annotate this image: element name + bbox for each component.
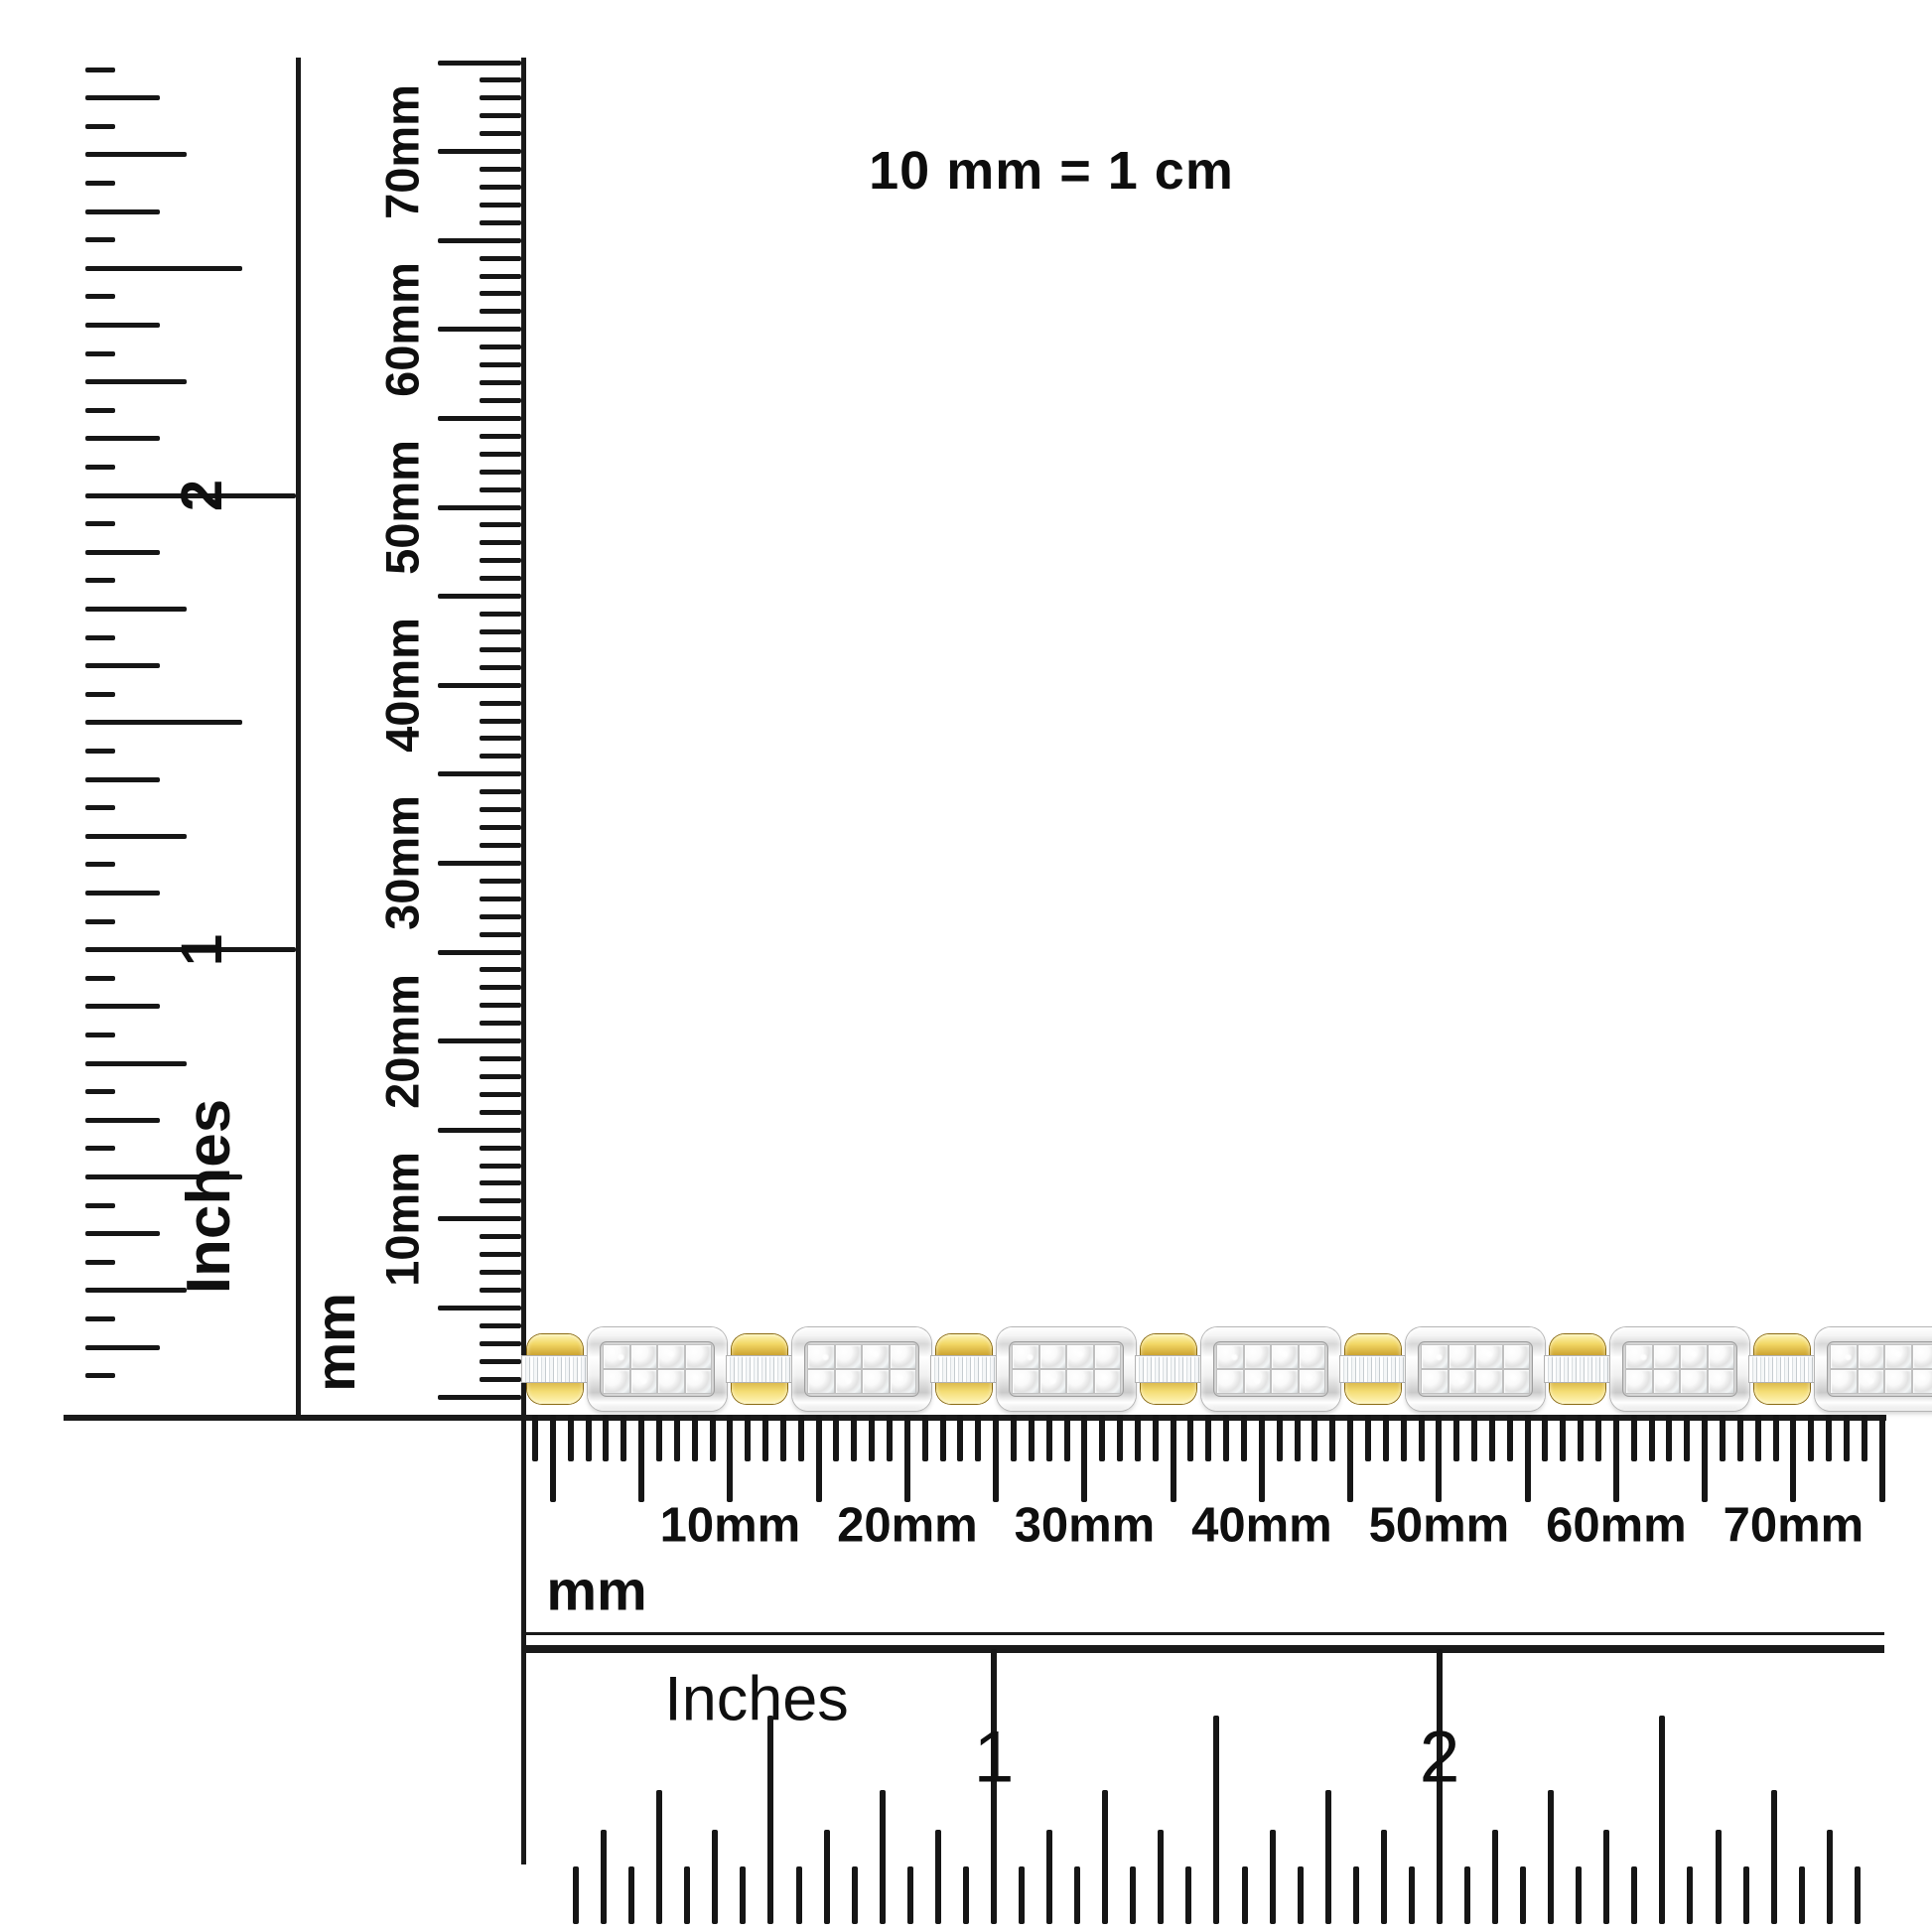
mm-minor-tick (480, 558, 521, 563)
mm-major-tick (1613, 1415, 1619, 1502)
mm-minor-tick (480, 985, 521, 990)
princess-diamond (1449, 1345, 1475, 1368)
mm-minor-tick (480, 612, 521, 617)
mm-minor-tick (674, 1415, 680, 1461)
mm-minor-tick (710, 1415, 716, 1461)
mm-minor-tick (480, 1180, 521, 1185)
sixteenth-inch-tick (1074, 1866, 1080, 1924)
half-inch-tick (1213, 1716, 1219, 1924)
scale-reference-image: 10 mm = 1 cm 21 Inches 70mm60mm50mm40mm3… (0, 0, 1932, 1932)
bracelet-link (1406, 1327, 1545, 1411)
eighth-inch-tick (824, 1830, 830, 1924)
mm-minor-tick (1117, 1415, 1123, 1461)
mm-minor-tick (480, 309, 521, 314)
sixteenth-inch-tick (85, 351, 115, 356)
princess-diamond (863, 1370, 889, 1393)
princess-diamond (1831, 1370, 1857, 1393)
mm-minor-tick (480, 576, 521, 581)
mm-minor-tick (1578, 1415, 1584, 1461)
mm-major-tick (550, 1415, 556, 1502)
princess-diamond (1476, 1345, 1502, 1368)
mm-minor-tick (480, 274, 521, 279)
quarter-inch-tick (1325, 1790, 1331, 1924)
quarter-inch-tick (85, 607, 187, 612)
baguette-diamond-channel (522, 1356, 588, 1382)
mm-minor-tick (692, 1415, 698, 1461)
mm-major-tick (438, 861, 521, 866)
sixteenth-inch-tick (85, 1146, 115, 1151)
princess-diamond (1504, 1345, 1530, 1368)
mm-minor-tick (480, 345, 521, 349)
sixteenth-inch-tick (85, 181, 115, 186)
sixteenth-inch-tick (85, 1260, 115, 1265)
mm-minor-tick (1241, 1415, 1247, 1461)
sixteenth-inch-tick (963, 1866, 969, 1924)
princess-diamond (1272, 1345, 1298, 1368)
horizontal-mm-tick-label: 60mm (1546, 1502, 1687, 1551)
sixteenth-inch-tick (1855, 1866, 1861, 1924)
eighth-inch-tick (712, 1830, 718, 1924)
princess-diamond (686, 1370, 712, 1393)
mm-minor-tick (1720, 1415, 1725, 1461)
mm-minor-tick (480, 434, 521, 439)
mm-major-tick (438, 950, 521, 955)
mm-minor-tick (480, 1092, 521, 1097)
baguette-diamond-channel (1749, 1356, 1815, 1382)
mm-major-tick (438, 505, 521, 510)
eighth-inch-tick (85, 209, 160, 214)
princess-diamond (604, 1345, 629, 1368)
bottom-inches-ruler-topline-thin (524, 1632, 1884, 1635)
sixteenth-inch-tick (85, 919, 115, 924)
mm-minor-tick (480, 522, 521, 527)
bracelet-gold-connector (1545, 1327, 1610, 1411)
princess-diamond (1095, 1345, 1121, 1368)
mm-minor-tick (1862, 1415, 1867, 1461)
sixteenth-inch-tick (85, 294, 115, 299)
princess-diamond (1040, 1345, 1066, 1368)
eighth-inch-tick (85, 1231, 160, 1236)
bracelet-photo (522, 1327, 1932, 1411)
sixteenth-inch-tick (85, 68, 115, 72)
mm-minor-tick (480, 291, 521, 296)
mm-major-tick (1525, 1415, 1531, 1502)
princess-diamond (1422, 1370, 1448, 1393)
sixteenth-inch-tick (85, 692, 115, 697)
princess-diamond (1913, 1345, 1932, 1368)
princess-diamond (1300, 1345, 1325, 1368)
bottom-inches-ruler-topline (524, 1645, 1884, 1653)
mm-major-tick (1347, 1415, 1353, 1502)
princess-diamond (1245, 1345, 1271, 1368)
princess-diamond (1626, 1370, 1652, 1393)
princess-diamond (836, 1370, 862, 1393)
mm-minor-tick (480, 487, 521, 492)
mm-minor-tick (480, 914, 521, 919)
mm-minor-tick (1542, 1415, 1548, 1461)
mm-minor-tick (480, 256, 521, 261)
vertical-mm-tick-label: 40mm (379, 618, 426, 753)
diamond-cluster-panel (1828, 1342, 1932, 1396)
sixteenth-inch-tick (85, 578, 115, 583)
sixteenth-inch-tick (85, 976, 115, 981)
quarter-inch-tick (1771, 1790, 1777, 1924)
half-inch-tick (767, 1716, 773, 1924)
mm-major-tick (1790, 1415, 1796, 1502)
mm-minor-tick (1419, 1415, 1425, 1461)
mm-minor-tick (480, 1288, 521, 1293)
bracelet-gold-connector (522, 1327, 588, 1411)
sixteenth-inch-tick (852, 1866, 858, 1924)
sixteenth-inch-tick (796, 1866, 802, 1924)
eighth-inch-tick (85, 550, 160, 555)
eighth-inch-tick (1492, 1830, 1498, 1924)
mm-minor-tick (480, 1323, 521, 1328)
vertical-mm-tick-label: 70mm (379, 84, 426, 219)
horizontal-mm-tick-label: 50mm (1369, 1502, 1510, 1551)
mm-minor-tick (480, 540, 521, 545)
sixteenth-inch-tick (85, 521, 115, 526)
princess-diamond (1449, 1370, 1475, 1393)
mm-major-tick (1081, 1415, 1087, 1502)
sixteenth-inch-tick (85, 1089, 115, 1094)
mm-minor-tick (1365, 1415, 1371, 1461)
princess-diamond (1859, 1370, 1884, 1393)
mm-major-tick (1259, 1415, 1265, 1502)
princess-diamond (808, 1370, 834, 1393)
vertical-mm-tick-label: 10mm (379, 1152, 426, 1287)
mm-major-tick (438, 594, 521, 599)
princess-diamond (1681, 1345, 1707, 1368)
mm-minor-tick (532, 1415, 538, 1461)
sixteenth-inch-tick (1631, 1866, 1637, 1924)
eighth-inch-tick (601, 1830, 607, 1924)
mm-minor-tick (1507, 1415, 1513, 1461)
princess-diamond (1709, 1370, 1734, 1393)
mm-minor-tick (869, 1415, 875, 1461)
mm-minor-tick (1489, 1415, 1495, 1461)
quarter-inch-tick (85, 1061, 187, 1066)
eighth-inch-tick (1270, 1830, 1276, 1924)
sixteenth-inch-tick (85, 805, 115, 810)
mm-major-tick (438, 1128, 521, 1133)
mm-minor-tick (480, 701, 521, 706)
eighth-inch-tick (1827, 1830, 1833, 1924)
mm-minor-tick (480, 1146, 521, 1151)
diamond-cluster-panel (805, 1342, 918, 1396)
sixteenth-inch-tick (1799, 1866, 1805, 1924)
left-inches-ruler-baseline (296, 58, 301, 1415)
mm-major-tick (816, 1415, 822, 1502)
eighth-inch-tick (85, 323, 160, 328)
princess-diamond (1504, 1370, 1530, 1393)
mm-major-tick (1879, 1415, 1885, 1502)
sixteenth-inch-tick (1520, 1866, 1526, 1924)
princess-diamond (658, 1345, 684, 1368)
horizontal-mm-tick-label: 10mm (660, 1502, 801, 1551)
half-inch-tick (85, 266, 242, 271)
mm-minor-tick (1011, 1415, 1017, 1461)
sixteenth-inch-tick (1576, 1866, 1582, 1924)
mm-major-tick (638, 1415, 644, 1502)
mm-minor-tick (1826, 1415, 1832, 1461)
sixteenth-inch-tick (85, 1033, 115, 1037)
eighth-inch-tick (1603, 1830, 1609, 1924)
baguette-diamond-channel (1545, 1356, 1610, 1382)
mm-minor-tick (480, 1341, 521, 1346)
mm-minor-tick (480, 629, 521, 634)
mm-minor-tick (480, 736, 521, 741)
eighth-inch-tick (1716, 1830, 1722, 1924)
princess-diamond (631, 1370, 657, 1393)
princess-diamond (808, 1345, 834, 1368)
mm-minor-tick (480, 362, 521, 367)
horizontal-mm-unit-label: mm (546, 1564, 646, 1620)
eighth-inch-tick (1381, 1830, 1387, 1924)
mm-major-tick (438, 1306, 521, 1311)
mm-minor-tick (480, 754, 521, 759)
sixteenth-inch-tick (628, 1866, 634, 1924)
mm-minor-tick (1029, 1415, 1035, 1461)
sixteenth-inch-tick (85, 862, 115, 867)
mm-minor-tick (1046, 1415, 1052, 1461)
mm-minor-tick (745, 1415, 751, 1461)
sixteenth-inch-tick (1353, 1866, 1359, 1924)
mm-minor-tick (1153, 1415, 1159, 1461)
mm-minor-tick (1223, 1415, 1229, 1461)
mm-major-tick (438, 61, 521, 66)
mm-major-tick (993, 1415, 999, 1502)
eighth-inch-tick (935, 1830, 941, 1924)
bracelet-link (792, 1327, 931, 1411)
mm-minor-tick (1684, 1415, 1690, 1461)
sixteenth-inch-tick (1242, 1866, 1248, 1924)
mm-minor-tick (957, 1415, 963, 1461)
mm-major-tick (438, 416, 521, 421)
mm-minor-tick (1666, 1415, 1672, 1461)
mm-minor-tick (480, 1198, 521, 1203)
left-inch-digit: 2 (174, 480, 231, 511)
mm-minor-tick (480, 1377, 521, 1382)
vertical-mm-tick-label: 50mm (379, 440, 426, 575)
scale-note: 10 mm = 1 cm (869, 140, 1234, 202)
princess-diamond (1913, 1370, 1932, 1393)
eighth-inch-tick (1158, 1830, 1164, 1924)
mm-minor-tick (1560, 1415, 1566, 1461)
eighth-inch-tick (85, 1345, 160, 1350)
princess-diamond (891, 1370, 916, 1393)
princess-diamond (1859, 1345, 1884, 1368)
mm-minor-tick (480, 203, 521, 207)
sixteenth-inch-tick (85, 1203, 115, 1208)
baguette-diamond-channel (1340, 1356, 1406, 1382)
sixteenth-inch-tick (1185, 1866, 1191, 1924)
vertical-mm-tick-label: 30mm (379, 795, 426, 930)
quarter-inch-tick (656, 1790, 662, 1924)
diamond-cluster-panel (1214, 1342, 1327, 1396)
mm-minor-tick (480, 932, 521, 937)
bracelet-link (588, 1327, 727, 1411)
princess-diamond (1709, 1345, 1734, 1368)
mm-minor-tick (480, 665, 521, 670)
mm-minor-tick (940, 1415, 946, 1461)
mm-major-tick (438, 1395, 521, 1400)
mm-major-tick (727, 1415, 733, 1502)
bottom-inch-digit: 2 (1420, 1722, 1460, 1794)
princess-diamond (1654, 1345, 1680, 1368)
mm-minor-tick (568, 1415, 574, 1461)
princess-diamond (1300, 1370, 1325, 1393)
sixteenth-inch-tick (85, 124, 115, 129)
mm-major-tick (1436, 1415, 1442, 1502)
horizontal-mm-tick-label: 40mm (1191, 1502, 1332, 1551)
bracelet-gold-connector (1749, 1327, 1815, 1411)
quarter-inch-tick (85, 152, 187, 157)
mm-minor-tick (1737, 1415, 1743, 1461)
eighth-inch-tick (85, 891, 160, 896)
quarter-inch-tick (1102, 1790, 1108, 1924)
eighth-inch-tick (85, 1004, 160, 1009)
mm-minor-tick (480, 897, 521, 901)
horizontal-mm-tick-label: 30mm (1015, 1502, 1156, 1551)
princess-diamond (1217, 1370, 1243, 1393)
half-inch-tick (1659, 1716, 1665, 1924)
princess-diamond (836, 1345, 862, 1368)
mm-minor-tick (1453, 1415, 1459, 1461)
sixteenth-inch-tick (85, 1316, 115, 1321)
mm-minor-tick (621, 1415, 626, 1461)
mm-minor-tick (480, 879, 521, 884)
princess-diamond (1067, 1345, 1093, 1368)
bottom-inches-unit-label: Inches (664, 1669, 849, 1731)
mm-minor-tick (1844, 1415, 1850, 1461)
princess-diamond (1476, 1370, 1502, 1393)
sixteenth-inch-tick (1687, 1866, 1693, 1924)
mm-minor-tick (1311, 1415, 1317, 1461)
baguette-diamond-channel (1136, 1356, 1201, 1382)
quarter-inch-tick (85, 834, 187, 839)
eighth-inch-tick (85, 436, 160, 441)
princess-diamond (1885, 1370, 1911, 1393)
princess-diamond (1095, 1370, 1121, 1393)
diamond-cluster-panel (601, 1342, 714, 1396)
sixteenth-inch-tick (573, 1866, 579, 1924)
baguette-diamond-channel (931, 1356, 997, 1382)
bracelet-gold-connector (1340, 1327, 1406, 1411)
bracelet-gold-connector (727, 1327, 792, 1411)
bracelet-link (1201, 1327, 1340, 1411)
left-inch-digit: 1 (174, 933, 231, 965)
sixteenth-inch-tick (85, 465, 115, 470)
mm-major-tick (438, 1216, 521, 1221)
princess-diamond (1681, 1370, 1707, 1393)
princess-diamond (1067, 1370, 1093, 1393)
mm-major-tick (438, 1038, 521, 1043)
mm-minor-tick (1329, 1415, 1335, 1461)
mm-minor-tick (480, 1164, 521, 1169)
sixteenth-inch-tick (85, 749, 115, 754)
princess-diamond (1626, 1345, 1652, 1368)
mm-minor-tick (480, 1110, 521, 1115)
quarter-inch-tick (85, 379, 187, 384)
mm-minor-tick (480, 452, 521, 457)
mm-minor-tick (1631, 1415, 1637, 1461)
bracelet-link (1610, 1327, 1749, 1411)
princess-diamond (686, 1345, 712, 1368)
princess-diamond (1422, 1345, 1448, 1368)
mm-minor-tick (480, 719, 521, 724)
princess-diamond (1013, 1345, 1038, 1368)
mm-minor-tick (480, 1003, 521, 1008)
princess-diamond (1885, 1345, 1911, 1368)
sixteenth-inch-tick (907, 1866, 913, 1924)
sixteenth-inch-tick (85, 635, 115, 640)
mm-minor-tick (1595, 1415, 1601, 1461)
mm-minor-tick (480, 647, 521, 652)
princess-diamond (1013, 1370, 1038, 1393)
sixteenth-inch-tick (1298, 1866, 1304, 1924)
mm-minor-tick (1383, 1415, 1389, 1461)
mm-minor-tick (480, 77, 521, 82)
half-inch-tick (85, 720, 242, 725)
bottom-inch-digit: 1 (974, 1722, 1015, 1794)
mm-minor-tick (1135, 1415, 1141, 1461)
mm-minor-tick (480, 185, 521, 190)
princess-diamond (1217, 1345, 1243, 1368)
princess-diamond (631, 1345, 657, 1368)
mm-minor-tick (922, 1415, 928, 1461)
mm-minor-tick (975, 1415, 981, 1461)
vertical-mm-ruler-baseline (521, 58, 526, 1864)
horizontal-mm-tick-label: 70mm (1724, 1502, 1864, 1551)
mm-minor-tick (480, 1021, 521, 1026)
diamond-cluster-panel (1010, 1342, 1123, 1396)
mm-minor-tick (887, 1415, 893, 1461)
mm-minor-tick (851, 1415, 857, 1461)
sixteenth-inch-tick (85, 1373, 115, 1378)
mm-minor-tick (1205, 1415, 1211, 1461)
mm-minor-tick (480, 807, 521, 812)
bracelet-gold-connector (931, 1327, 997, 1411)
mm-minor-tick (1277, 1415, 1283, 1461)
mm-minor-tick (1755, 1415, 1761, 1461)
mm-major-tick (438, 149, 521, 154)
eighth-inch-tick (85, 663, 160, 668)
mm-minor-tick (480, 789, 521, 794)
princess-diamond (1040, 1370, 1066, 1393)
mm-minor-tick (798, 1415, 804, 1461)
princess-diamond (658, 1370, 684, 1393)
sixteenth-inch-tick (1409, 1866, 1415, 1924)
mm-minor-tick (480, 1252, 521, 1257)
mm-major-tick (1702, 1415, 1708, 1502)
bracelet-gold-connector (1136, 1327, 1201, 1411)
mm-minor-tick (1773, 1415, 1779, 1461)
mm-minor-tick (780, 1415, 786, 1461)
diamond-cluster-panel (1623, 1342, 1736, 1396)
quarter-inch-tick (880, 1790, 886, 1924)
mm-minor-tick (1471, 1415, 1477, 1461)
mm-minor-tick (480, 113, 521, 118)
mm-minor-tick (1401, 1415, 1407, 1461)
mm-minor-tick (480, 398, 521, 403)
mm-minor-tick (586, 1415, 592, 1461)
vertical-mm-unit-label: mm (308, 1293, 363, 1392)
sixteenth-inch-tick (1464, 1866, 1470, 1924)
mm-minor-tick (480, 95, 521, 100)
mm-minor-tick (762, 1415, 768, 1461)
princess-diamond (1831, 1345, 1857, 1368)
